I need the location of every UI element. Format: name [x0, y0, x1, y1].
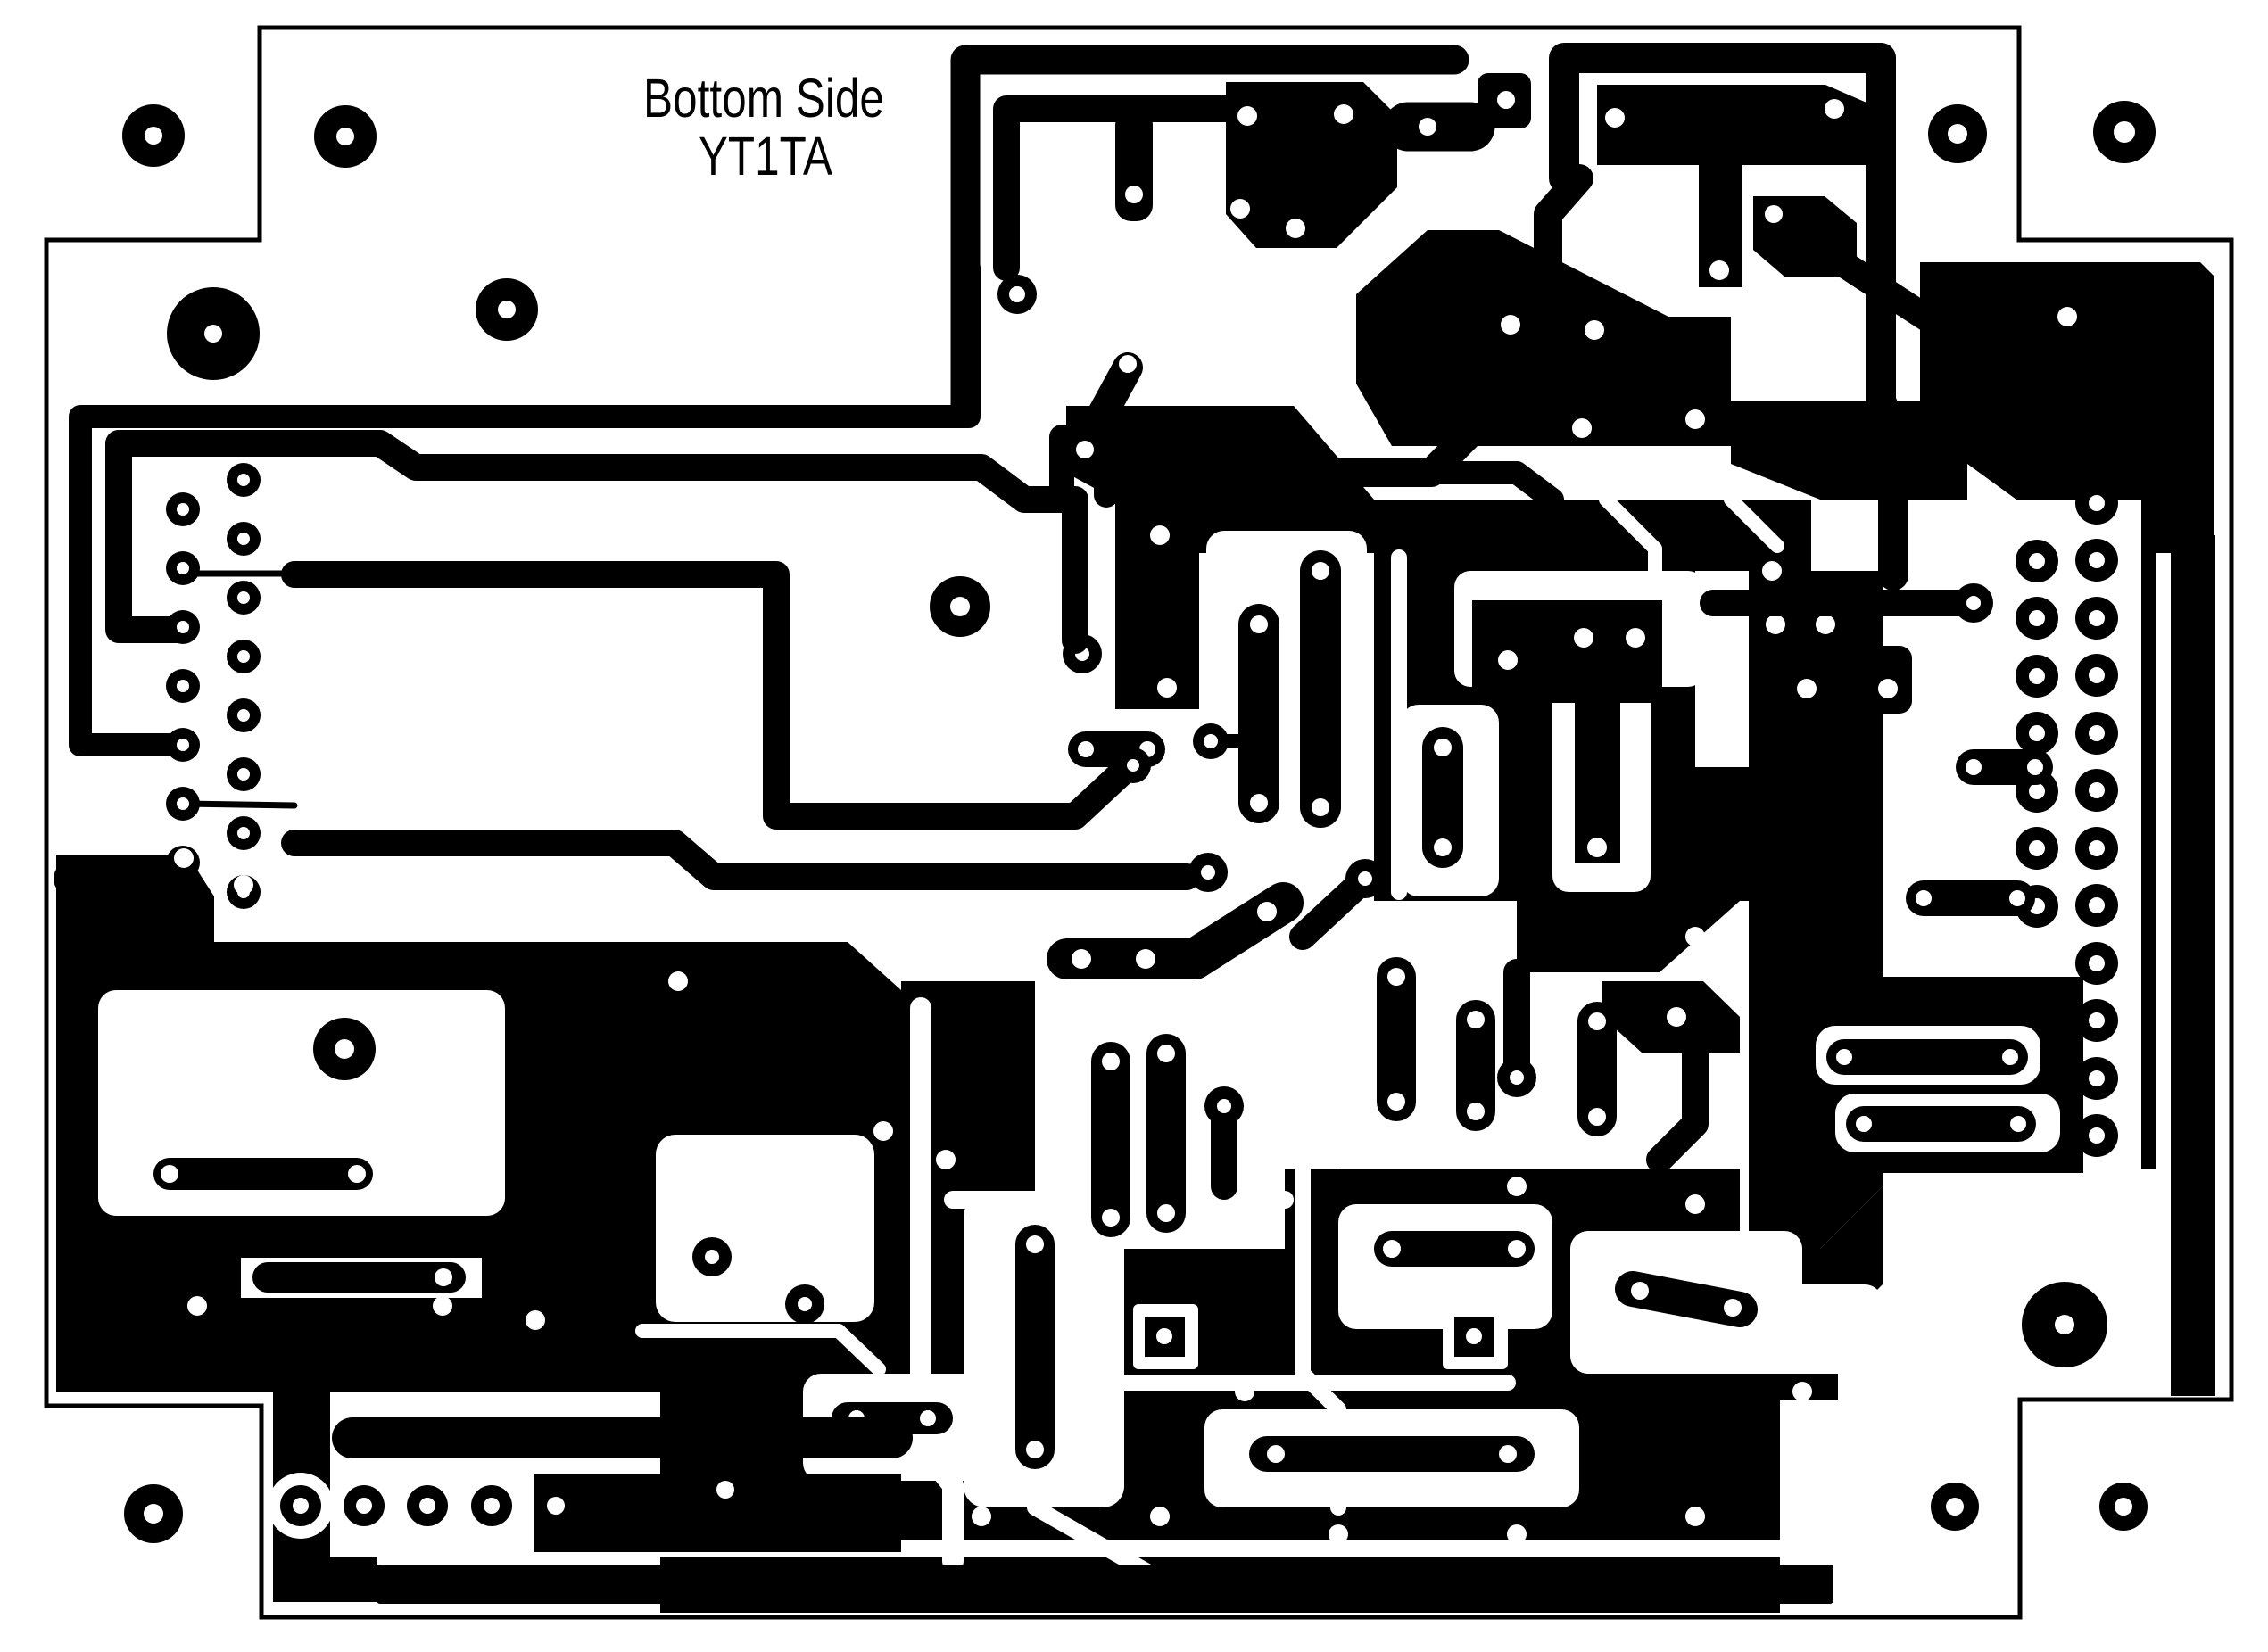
svg-text:Bottom Side: Bottom Side — [643, 68, 884, 128]
svg-text:YT1TA: YT1TA — [699, 126, 832, 186]
